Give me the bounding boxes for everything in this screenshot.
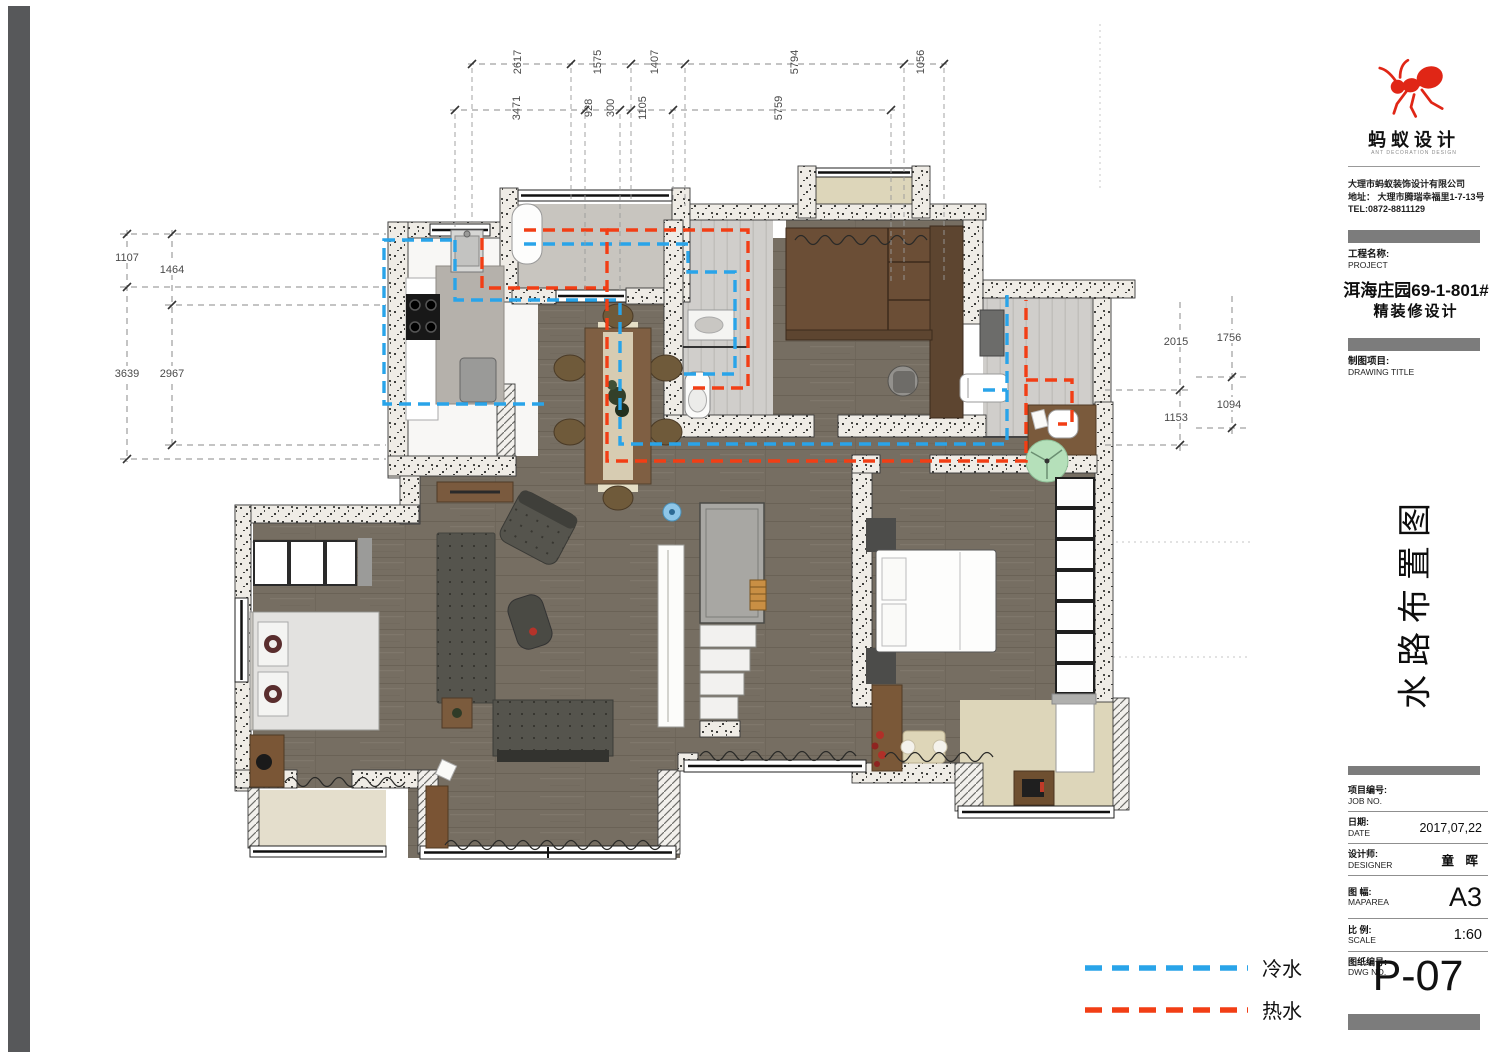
drawing-title-vertical: 水路布置图: [1388, 492, 1437, 712]
window-balcony-bottomright: [958, 806, 1114, 818]
dining-chair: [554, 355, 586, 381]
closet-end-panel: [358, 538, 372, 586]
company-name: 大理市蚂蚁装饰设计有限公司: [1348, 178, 1488, 191]
tv-console: [493, 700, 613, 756]
company-tel: TEL:0872-8811129: [1348, 203, 1488, 216]
dining-chair: [650, 355, 682, 381]
fridge-icon: [460, 358, 496, 402]
info-row-designer: 设计师:DESIGNER 童 晖: [1348, 844, 1488, 876]
wardrobe-cell: [1056, 509, 1094, 538]
stair-step: [700, 625, 756, 647]
stair-step: [700, 673, 744, 695]
pillow-icon: [882, 558, 906, 600]
svg-text:2617: 2617: [512, 50, 524, 74]
storage-bench: [1056, 704, 1094, 772]
laundry-locker: [980, 310, 1004, 356]
svg-text:1056: 1056: [915, 50, 927, 74]
svg-text:1105: 1105: [637, 96, 649, 120]
project-name-line1: 洱海庄园69-1-801#: [1340, 276, 1492, 301]
wardrobe-cell: [1056, 540, 1094, 569]
svg-text:300: 300: [605, 99, 617, 117]
section-bar: [1348, 1014, 1480, 1030]
company-address: 地址： 大理市腾瑞幸福里1-7-13号: [1348, 191, 1488, 204]
floor-plan-canvas: 2617 1575 1407 5794 1056 3471 928 300 11…: [0, 0, 1500, 1061]
closet-cell: [290, 541, 324, 585]
wardrobe-cell: [1056, 571, 1094, 600]
section-bar: [1348, 766, 1480, 775]
svg-text:5794: 5794: [789, 50, 801, 74]
svg-text:2967: 2967: [160, 368, 184, 380]
window-top-balcony: [518, 190, 672, 201]
window-middle-bottom: [684, 760, 866, 772]
pillow-icon: [882, 604, 906, 646]
bed-icon: [876, 550, 996, 652]
sofa-rug: [437, 533, 495, 703]
project-name-line2: 精装修设计: [1340, 300, 1492, 321]
binding-strip: [8, 6, 30, 1052]
wardrobe-cell: [1056, 478, 1094, 507]
svg-text:1756: 1756: [1217, 332, 1241, 344]
section-bar: [1348, 338, 1480, 351]
window-living-bay: [420, 846, 676, 859]
legend-cold-label: 冷水: [1262, 958, 1302, 981]
svg-text:3639: 3639: [115, 368, 139, 380]
lamp-icon: [256, 754, 272, 770]
closet-cell: [326, 541, 356, 585]
water-heater-icon: [512, 204, 542, 264]
svg-text:1575: 1575: [592, 50, 604, 74]
stove-icon: [406, 294, 440, 340]
svg-text:2015: 2015: [1164, 336, 1188, 348]
closet-cell: [254, 541, 288, 585]
project-label-en: PROJECT: [1348, 260, 1389, 270]
headboard-unit: [866, 648, 896, 684]
info-row-jobno: 项目编号:JOB NO.: [1348, 780, 1488, 812]
company-info: 大理市蚂蚁装饰设计有限公司 地址： 大理市腾瑞幸福里1-7-13号 TEL:08…: [1348, 178, 1488, 216]
dining-chair: [554, 419, 586, 445]
svg-text:1407: 1407: [649, 50, 661, 74]
desk-chair-icon: [888, 366, 918, 396]
window-balcony-bottomleft: [250, 846, 386, 857]
section-bar: [1348, 230, 1480, 243]
headboard-unit: [866, 518, 896, 552]
bed-icon: [250, 612, 379, 730]
project-label-zh: 工程名称:: [1348, 249, 1389, 260]
wardrobe-base: [1052, 694, 1096, 704]
robot-vacuum-icon: [663, 503, 681, 521]
dining-chair: [650, 419, 682, 445]
info-row-date: 日期:DATE 2017,07,22: [1348, 812, 1488, 844]
drawing-sheet: 2617 1575 1407 5794 1056 3471 928 300 11…: [0, 0, 1500, 1061]
svg-text:1107: 1107: [115, 252, 139, 264]
window-topright-balcony: [816, 168, 912, 177]
round-rug-icon: [1026, 440, 1068, 482]
svg-text:1153: 1153: [1164, 412, 1188, 424]
legend-hot-label: 热水: [1262, 1000, 1302, 1023]
window-bedroom-left: [235, 598, 248, 682]
info-row-maparea: 图 幅:MAPAREA A3: [1348, 876, 1488, 919]
drawing-number: P-07: [1348, 952, 1488, 1001]
drawing-label-en: DRAWING TITLE: [1348, 367, 1414, 377]
floor-mat-icon: [1014, 771, 1054, 805]
stair-step: [700, 697, 738, 719]
bathroom-sink-icon: [688, 310, 734, 340]
legend: 冷水 热水: [1085, 958, 1302, 1023]
stair-rail-panel: [658, 545, 684, 727]
wardrobe-cell: [1056, 664, 1094, 693]
ladder-icon: [750, 580, 766, 610]
study-side-cabinet: [930, 226, 963, 418]
door-leaf: [426, 786, 448, 848]
wardrobe-cell: [1056, 633, 1094, 662]
ant-logo-icon: [1372, 50, 1450, 122]
divider: [1348, 166, 1480, 167]
stair-step: [700, 649, 750, 671]
toilet-icon: [685, 372, 710, 418]
info-row-scale: 比 例:SCALE 1:60: [1348, 919, 1488, 952]
wardrobe-cell: [1056, 602, 1094, 631]
svg-text:5759: 5759: [773, 96, 785, 120]
dimension-left: 1107 3639 1464 2967: [109, 230, 386, 463]
drawing-label-zh: 制图项目:: [1348, 356, 1414, 367]
svg-text:1094: 1094: [1217, 399, 1241, 411]
brand-subtitle: ANT DECORATION DESIGN: [1348, 150, 1480, 156]
svg-text:1464: 1464: [160, 264, 184, 276]
dining-chair: [603, 486, 633, 510]
dimension-right: 2015 1153 1756 1094: [1105, 296, 1248, 452]
brand-name: 蚂蚁设计: [1348, 126, 1480, 152]
svg-text:3471: 3471: [511, 96, 523, 120]
